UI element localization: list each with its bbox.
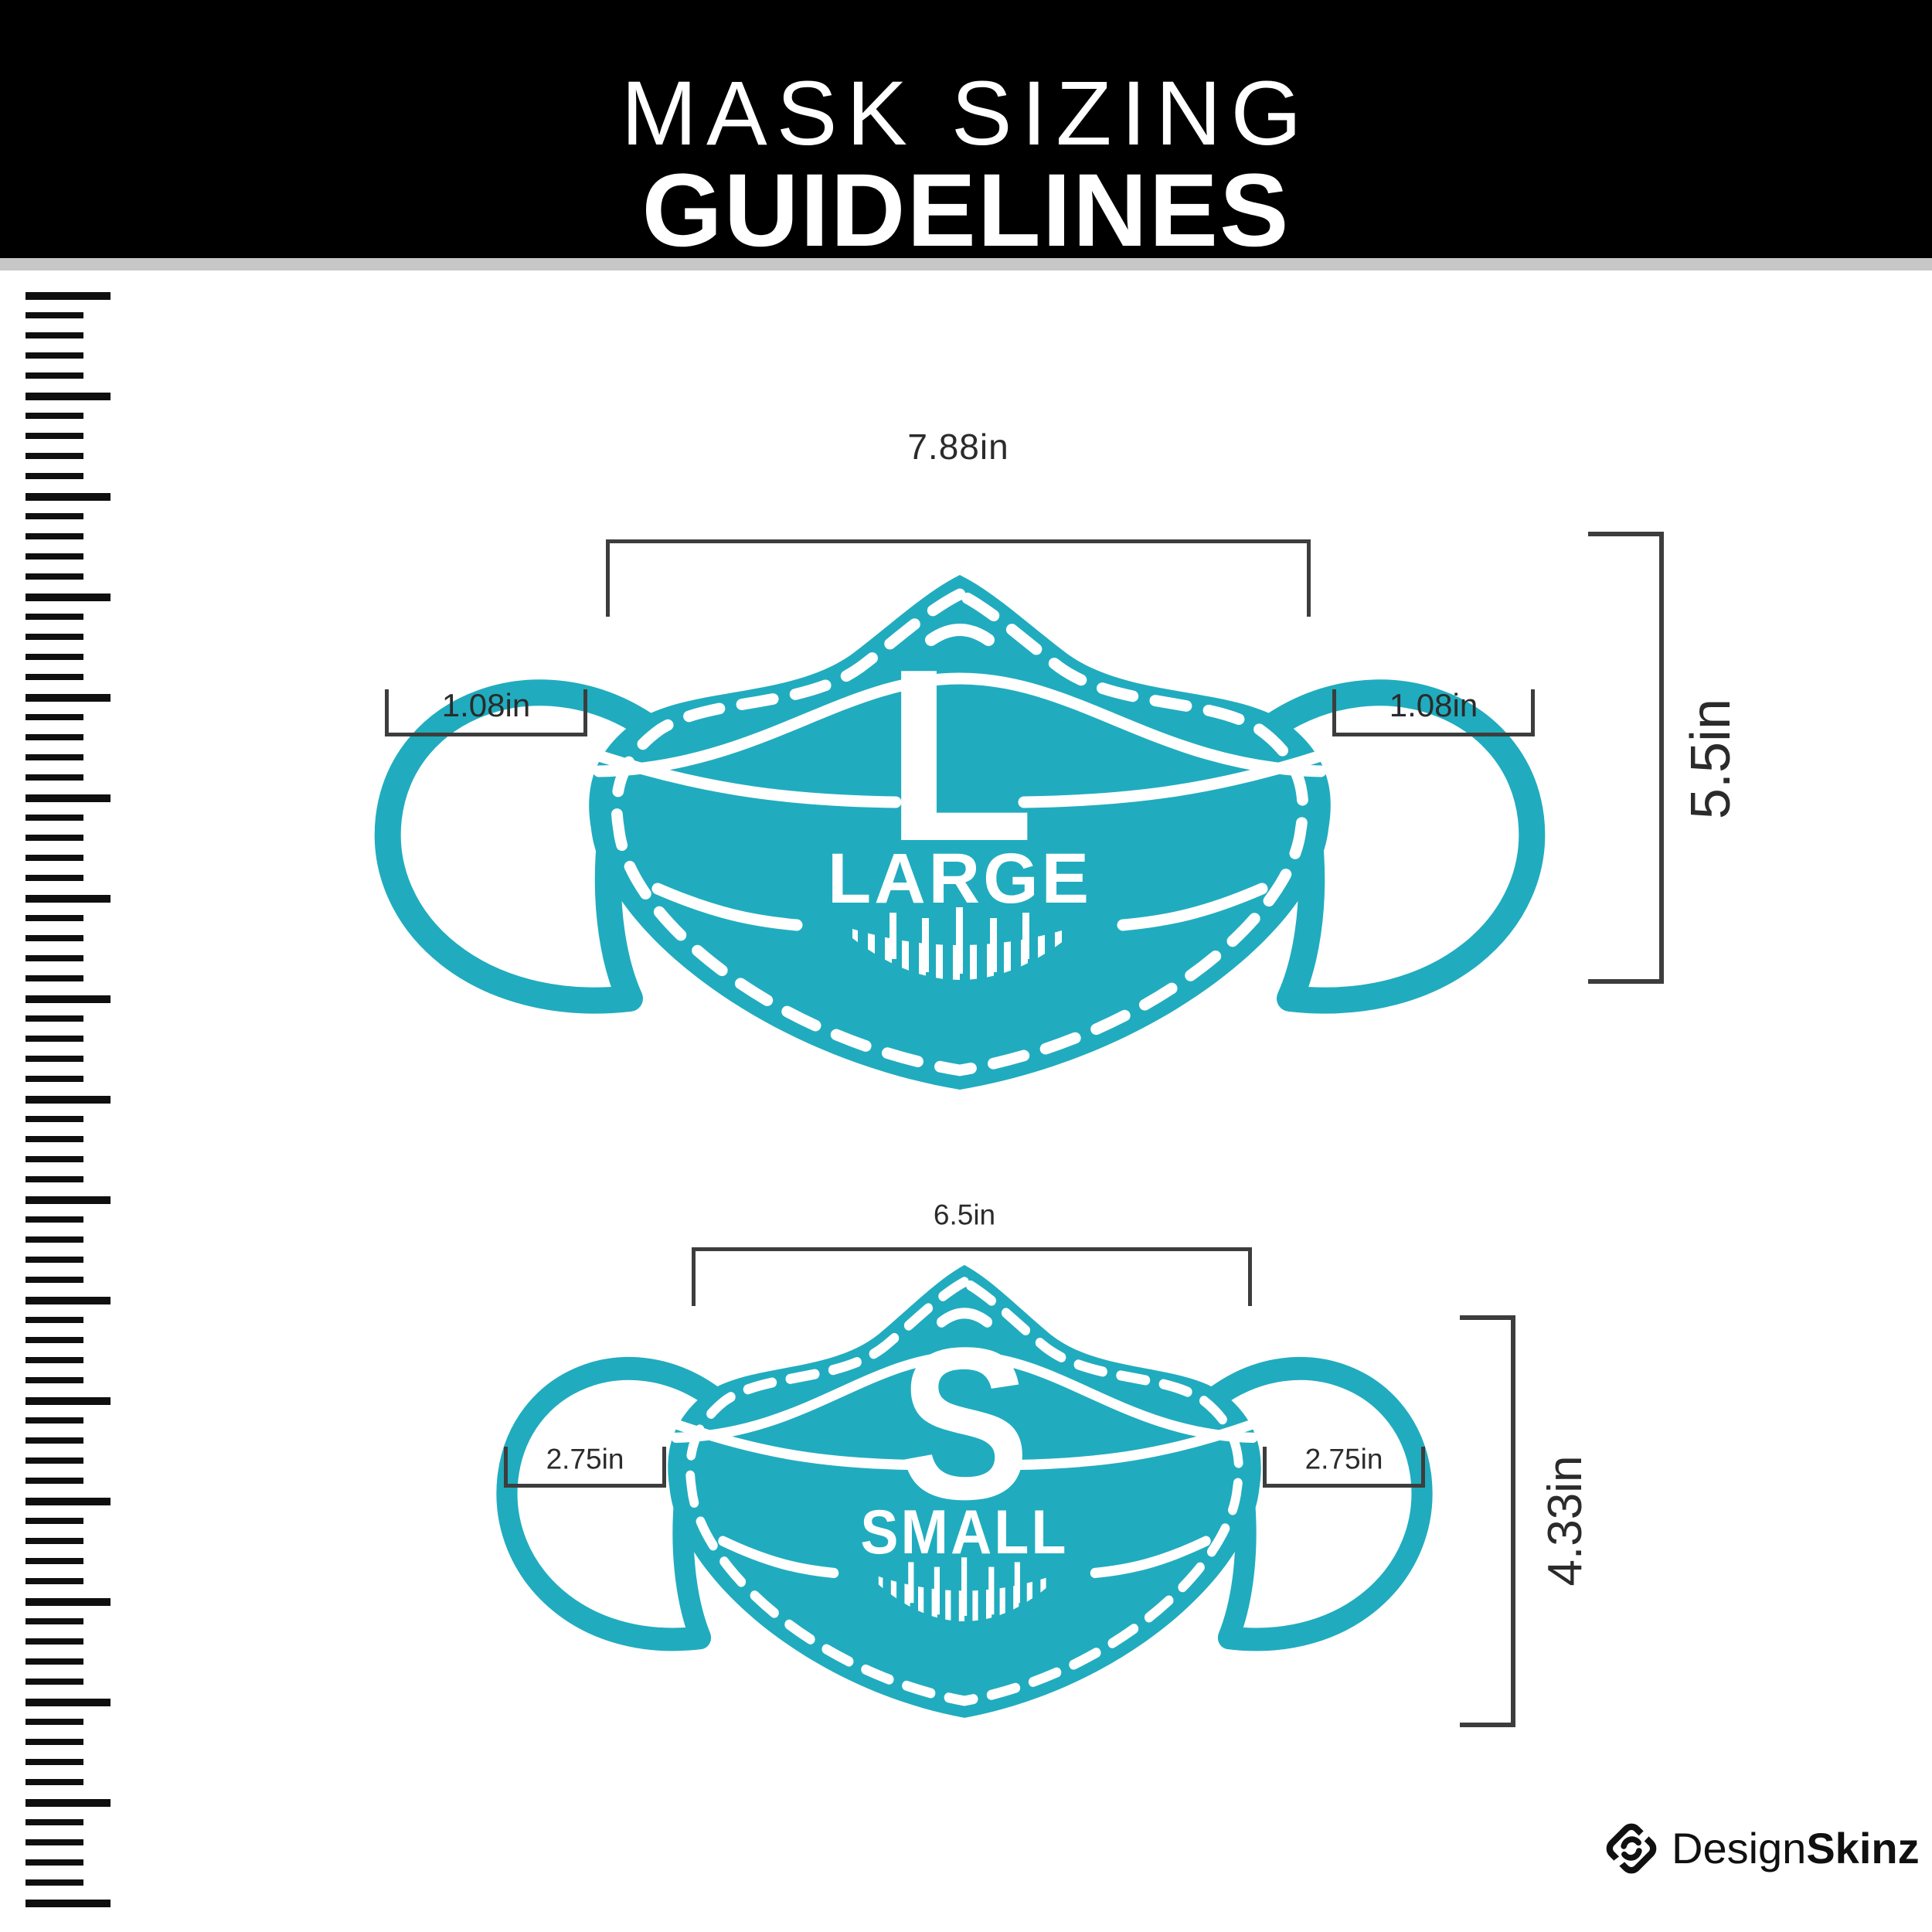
brand-name-bold: Skinz xyxy=(1806,1824,1919,1872)
large-height-bracket xyxy=(1659,532,1664,984)
brand-logo: DesignSkinz xyxy=(1602,1818,1920,1879)
large-ear-right-bracket xyxy=(1332,733,1535,736)
page-title-line1: MASK SIZING xyxy=(0,68,1932,159)
large-ear-left-bracket xyxy=(385,733,587,736)
small-ear-right-label: 2.75in xyxy=(1305,1445,1383,1474)
mask-size-name-small: SMALL xyxy=(860,1498,1068,1567)
designskinz-diamond-icon xyxy=(1602,1819,1661,1878)
small-ear-left-label: 2.75in xyxy=(546,1445,624,1474)
large-width-bracket xyxy=(606,539,1311,543)
face-mask-icon-large: L LARGE xyxy=(358,561,1562,1102)
small-width-bracket xyxy=(692,1247,1252,1251)
small-ear-right-bracket xyxy=(1263,1484,1425,1488)
small-ear-left-bracket xyxy=(504,1484,666,1488)
small-height-bracket xyxy=(1511,1315,1515,1727)
small-width-label: 6.5in xyxy=(934,1201,995,1230)
large-ear-left-label: 1.08in xyxy=(442,689,530,722)
large-ear-right-label: 1.08in xyxy=(1389,689,1478,722)
page-title-line2: GUIDELINES xyxy=(0,159,1932,263)
face-mask-icon-small: S SMALL xyxy=(483,1253,1446,1729)
small-height-label: 4.33in xyxy=(1542,1456,1590,1587)
brand-name-regular: Design xyxy=(1672,1824,1806,1872)
brand-name: DesignSkinz xyxy=(1672,1827,1920,1870)
ruler-long-ticks xyxy=(26,292,111,1907)
header-divider xyxy=(0,258,1932,270)
mask-size-name-large: LARGE xyxy=(828,839,1092,918)
ruler-icon xyxy=(26,292,111,1907)
large-width-label: 7.88in xyxy=(907,429,1009,464)
header-banner: MASK SIZING GUIDELINES xyxy=(0,0,1932,258)
large-height-label: 5.5in xyxy=(1683,699,1739,819)
